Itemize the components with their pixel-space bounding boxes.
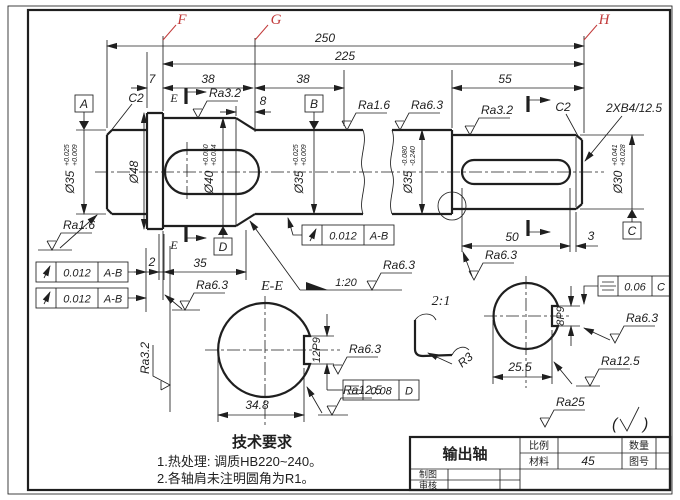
dim-8p9: 8P9 [555,306,567,326]
roughness-ee-flat: Ra12.5 [307,383,382,415]
svg-text:Ra6.3: Ra6.3 [626,311,658,325]
svg-text:E: E [169,91,178,105]
quantity-label: 数量 [629,439,649,452]
section-mark-right-top [528,96,550,112]
detail-2-1: 2:1 R3 [415,294,476,370]
svg-text:-0.240: -0.240 [410,146,417,166]
svg-text:C2: C2 [128,91,144,105]
detail-scale-label: 2:1 [432,294,451,309]
tol-frame-sym-right: 0.06 C [584,276,670,304]
dim-dia35-right: Ø35 -0.080 -0.240 [401,130,422,214]
tol-frame-runout-left-top: 0.012 A-B [36,262,146,282]
datum-b: B [310,97,318,111]
label-h: H [598,12,611,28]
dim-dia30: C Ø30 +0.041 +0.028 [580,135,644,239]
tech-req-line2: 2.各轴肩未注明圆角为R1。 [157,471,314,486]
svg-text:Ra3.2: Ra3.2 [209,86,241,100]
svg-text:225: 225 [334,49,355,63]
svg-text:A-B: A-B [103,268,122,280]
dim-250: 250 [107,31,584,46]
part-name: 输出轴 [442,445,487,463]
dim-50-3: 50 3 [462,188,598,252]
svg-text:+0.025: +0.025 [293,144,300,166]
svg-text:Ra6.3: Ra6.3 [196,278,228,292]
svg-text:35: 35 [193,256,207,270]
svg-text:Ra6.3: Ra6.3 [383,258,415,272]
svg-text:Ra6.3: Ra6.3 [349,342,381,356]
section-mark-right-bottom [528,220,550,236]
svg-text:Ø48: Ø48 [127,160,141,184]
svg-text:C: C [657,282,665,294]
dim-225: 225 [163,49,584,64]
datum-c: C [628,224,637,238]
svg-text:+0.025: +0.025 [64,144,71,166]
roughness-rs-flat: Ra12.5 [554,354,640,386]
svg-text:Ra12.5: Ra12.5 [343,383,382,397]
section-ee: E-E 12P9 34.8 Ra6.3 0.08 D Ra12.5 [205,279,419,425]
roughness-ee-side: Ra6.3 [333,342,381,374]
svg-text:2XB4/12.5: 2XB4/12.5 [605,101,662,115]
svg-text:+0.041: +0.041 [612,144,619,166]
checked-by-label: 审核 [419,480,437,491]
svg-text:+0.009: +0.009 [301,144,308,166]
section-right: 8P9 25.5 0.06 C Ra6.3 Ra12.5 Ra25 ( ) [484,276,670,433]
fillet-radius-label: R3 [455,350,476,371]
svg-text:+0.050: +0.050 [203,144,210,166]
roughness-taper-surface: Ra6.3 [367,258,415,290]
view-letter-g: G [255,12,282,40]
svg-text:3: 3 [588,229,595,243]
svg-text:Ra3.2: Ra3.2 [138,342,152,374]
svg-text:Ø35: Ø35 [401,170,415,194]
svg-text:Ø35: Ø35 [292,170,306,194]
technical-requirements: 技术要求 1.热处理: 调质HB220~240。 2.各轴肩未注明圆角为R1。 [157,433,322,486]
svg-text:50: 50 [505,230,519,244]
taper-ratio-label: 1:20 [335,277,357,289]
svg-text:Ra1.6: Ra1.6 [63,218,95,232]
roughness-left-journal: Ra1.6 [38,215,97,250]
dim-55: 55 [452,72,584,88]
svg-text:Ra1.6: Ra1.6 [358,98,390,112]
svg-text:D: D [405,386,413,398]
svg-text:(: ( [612,416,619,433]
dim-25-5: 25.5 [507,360,532,374]
svg-text:2: 2 [148,255,156,269]
svg-text:0.012: 0.012 [63,268,91,280]
svg-text:Ø30: Ø30 [611,170,625,194]
tech-req-line1: 1.热处理: 调质HB220~240。 [157,454,322,469]
title-block: 输出轴 比例 材料 45 数量 图号 制图 审核 [410,437,670,491]
svg-text:E: E [169,238,178,252]
svg-text:Ra25: Ra25 [556,395,585,409]
svg-text:+0.034: +0.034 [211,144,218,166]
svg-text:+0.009: +0.009 [72,144,79,166]
roughness-taper-top: Ra3.2 [193,86,241,118]
svg-text:55: 55 [498,72,512,86]
section-ee-label: E-E [260,279,283,294]
section-mark-e-top: E [169,88,206,105]
svg-text:38: 38 [201,72,215,86]
callout-c2-right: C2 [555,100,578,136]
svg-text:250: 250 [314,31,335,45]
material-value: 45 [581,454,595,468]
roughness-rs-side: Ra6.3 [584,311,658,343]
svg-text:0.012: 0.012 [63,294,91,306]
section-mark-e-bottom: E [169,226,206,252]
svg-text:Ra3.2: Ra3.2 [481,103,513,117]
datum-d: D [219,240,228,254]
drawn-by-label: 制图 [419,469,437,480]
label-g: G [271,12,282,28]
datum-a: A [79,97,88,111]
view-letter-h: H [584,12,611,40]
tech-req-title: 技术要求 [232,433,293,451]
dim-dia40: D Ø40 +0.050 +0.034 [202,118,232,255]
svg-text:Ra6.3: Ra6.3 [411,98,443,112]
tol-frame-runout-left-bottom: 0.012 A-B [36,248,146,312]
dim-dia35-mid: B Ø35 +0.025 +0.009 [292,95,323,214]
dim-38b: 38 [255,72,344,88]
svg-text:Ø35: Ø35 [63,170,77,194]
svg-text:A-B: A-B [103,294,122,306]
svg-text:0.06: 0.06 [624,282,646,294]
label-f: F [176,12,187,28]
svg-text:): ) [641,416,648,433]
roughness-slot: Ra6.3 [463,248,517,280]
sheet-border [8,6,672,494]
dim-34-8: 34.8 [245,398,269,412]
view-letter-f: F [163,12,187,40]
svg-text:Ra12.5: Ra12.5 [601,354,640,368]
svg-text:8: 8 [260,94,267,108]
material-label: 材料 [529,455,549,468]
svg-text:0.012: 0.012 [329,231,357,243]
roughness-d30-top: Ra3.2 [465,103,513,135]
engineering-drawing-canvas: F G H 250 225 7 38 38 55 8 E E A Ø35 +0.… [0,0,680,500]
svg-text:38: 38 [296,72,310,86]
svg-text:-0.080: -0.080 [402,146,409,166]
svg-text:Ra6.3: Ra6.3 [485,248,517,262]
roughness-left-face: Ra3.2 [138,246,170,412]
svg-text:A-B: A-B [369,231,388,243]
drawing-number-label: 图号 [629,456,649,468]
dim-dia35-left: A Ø35 +0.025 +0.009 [63,95,106,214]
shaft-outline [107,113,582,229]
roughness-seal-top: Ra6.3 [395,98,443,130]
drawing-sheet: F G H 250 225 7 38 38 55 8 E E A Ø35 +0.… [0,0,680,500]
tol-frame-runout-mid: 0.012 A-B [288,218,394,245]
svg-text:C2: C2 [555,100,571,114]
roughness-mid-top: Ra1.6 [342,98,390,130]
dim-12p9: 12P9 [311,337,323,363]
svg-text:+0.028: +0.028 [620,144,627,166]
callout-c2-left: C2 [110,91,144,132]
svg-text:Ø40: Ø40 [202,170,216,194]
svg-text:7: 7 [149,72,157,86]
roughness-others-note: ( ) [612,407,648,433]
scale-label: 比例 [529,439,549,452]
roughness-end: Ra25 [540,395,585,427]
